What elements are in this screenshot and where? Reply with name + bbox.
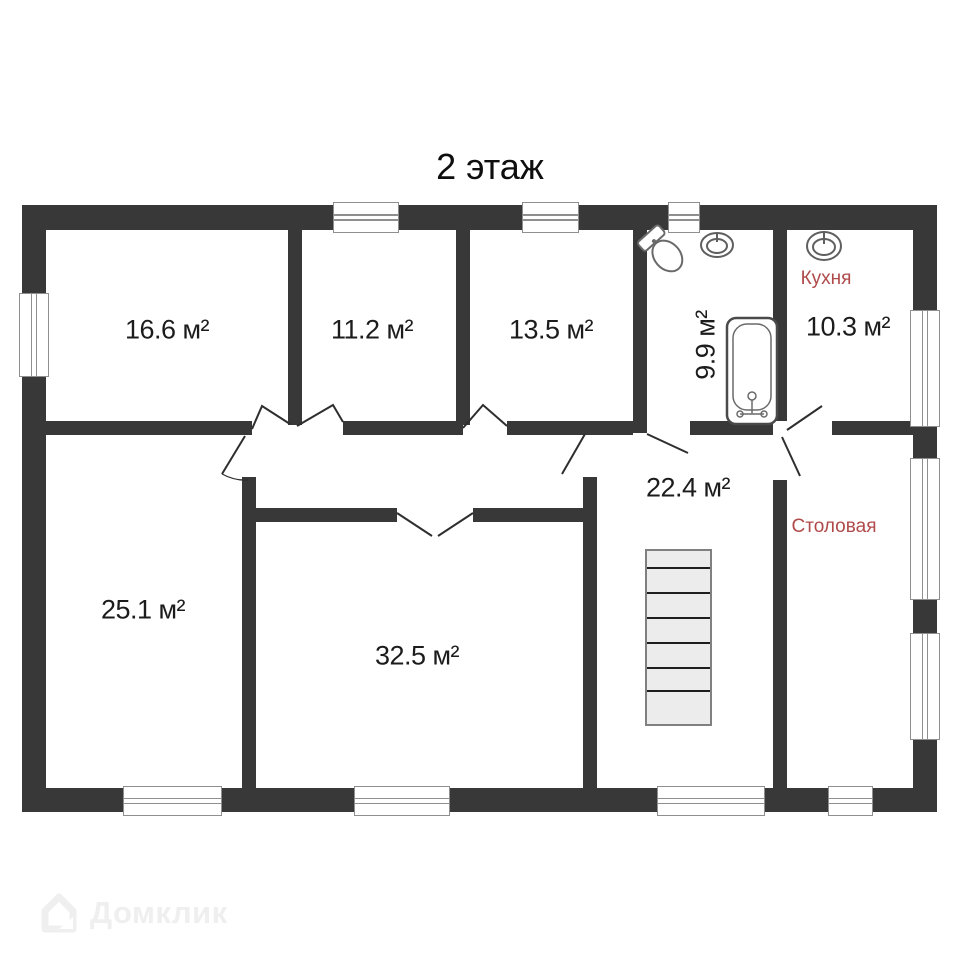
wall-corridor-top-mid — [343, 421, 463, 435]
door-leaf-kitchen — [787, 406, 822, 430]
wall-hall-left — [583, 477, 597, 788]
window-top-2 — [522, 202, 579, 233]
sink-icon — [701, 233, 733, 257]
room-name-dining: Столовая — [792, 516, 877, 538]
wall-32-5-top-right — [473, 508, 583, 522]
floor-title: 2 этаж — [436, 146, 544, 188]
area-label-kitchen: 10.3 м² — [806, 312, 890, 343]
kitchen-sink-icon — [807, 232, 841, 260]
door-leaf-room-32-5-left — [397, 513, 432, 536]
plan-symbols — [0, 0, 960, 960]
wall-16-6-11-2 — [288, 230, 302, 425]
watermark-text: Домклик — [90, 895, 228, 931]
wall-25-1-32-5 — [242, 477, 256, 788]
area-label-32-5: 32.5 м² — [375, 641, 459, 672]
wall-corridor-top-right — [507, 421, 633, 435]
window-top-3 — [668, 202, 700, 233]
window-bottom-4 — [828, 786, 873, 816]
area-label-hall: 22.4 м² — [646, 473, 730, 504]
door-leaf-room-16-6 — [252, 406, 290, 429]
domclick-house-icon — [38, 890, 80, 936]
wall-bathroom-kitchen — [773, 230, 787, 421]
area-label-16-6: 16.6 м² — [125, 315, 209, 346]
door-leaf-room-32-5-right — [438, 513, 473, 536]
window-right-kitchen — [910, 310, 940, 427]
room-name-kitchen: Кухня — [801, 268, 852, 290]
window-right-dining-2 — [910, 633, 940, 740]
wall-outer-top — [22, 205, 937, 230]
door-leaf-hall — [562, 434, 585, 474]
staircase — [645, 549, 712, 726]
window-left — [19, 293, 49, 377]
wall-13-5-bathroom — [633, 230, 647, 433]
wall-32-5-top-left — [252, 508, 397, 522]
door-leaf-bathroom — [647, 434, 688, 453]
wall-kitchen-bottom — [832, 421, 913, 435]
wall-hall-dining — [773, 480, 787, 788]
window-bottom-3 — [657, 786, 765, 816]
door-leaf-dining — [782, 437, 800, 476]
door-leaf-room-11-2 — [297, 405, 343, 426]
wall-11-2-13-5 — [456, 230, 470, 425]
area-label-25-1: 25.1 м² — [101, 595, 185, 626]
wall-bathroom-bottom — [690, 421, 773, 435]
door-leaf-room-25-1 — [222, 436, 245, 474]
area-label-11-2: 11.2 м² — [331, 315, 413, 346]
window-top-1 — [333, 202, 399, 233]
area-label-13-5: 13.5 м² — [509, 315, 593, 346]
floor-plan: 2 этаж — [0, 0, 960, 960]
window-bottom-1 — [123, 786, 222, 816]
bathtub-icon — [727, 318, 777, 424]
area-label-bathroom: 9.9 м² — [691, 310, 722, 380]
watermark: Домклик — [38, 890, 228, 936]
wall-corridor-top-left — [46, 421, 252, 435]
window-bottom-2 — [354, 786, 450, 816]
window-right-dining-1 — [910, 458, 940, 600]
